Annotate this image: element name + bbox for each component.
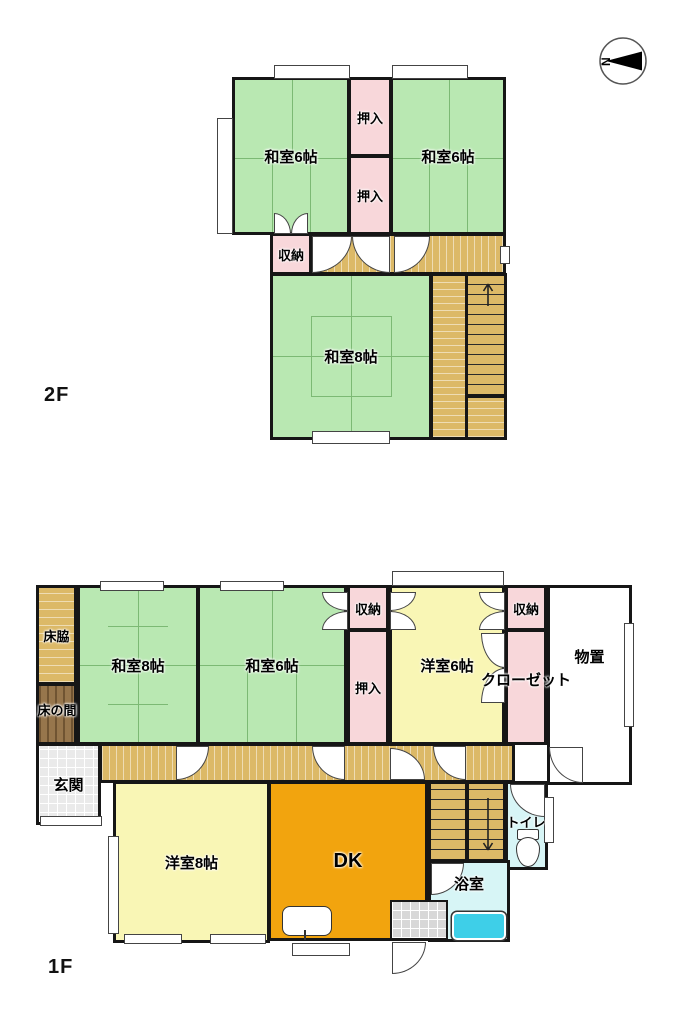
room-label: 洋室8帖 <box>165 852 218 873</box>
back-step-outside <box>292 943 350 956</box>
room-label: DK <box>334 850 363 873</box>
staircase-1f <box>428 781 506 862</box>
door-arc-1f-backdoor <box>392 942 426 974</box>
bay-window-1f-yoshitsu6 <box>392 571 504 586</box>
room-label: 床脇 <box>43 626 69 645</box>
vent-2f-right <box>500 246 510 264</box>
kitchen-sink-faucet-icon <box>304 930 306 940</box>
room-2f-shuno: 収納 <box>270 233 312 275</box>
window-2f-left <box>217 118 233 234</box>
room-1f-washitsu8: 和室8帖 <box>77 585 199 745</box>
room-label: 和室6帖 <box>245 655 298 676</box>
room-1f-genkan: 玄関 <box>36 743 101 825</box>
entrance-door-1f <box>40 816 102 826</box>
room-1f-monooki-label: 物置 <box>547 646 632 666</box>
room-1f-shuno-right: 収納 <box>505 585 547 631</box>
corridor-2f <box>430 273 469 440</box>
floor-1f-label: 1F <box>48 956 73 979</box>
room-1f-closet-label: クローゼット <box>478 670 574 688</box>
room-2f-oshiire-mid: 押入 <box>348 155 392 235</box>
room-2f-washitsu6-left: 和室6帖 <box>232 77 350 235</box>
window-2f-bottom <box>312 431 390 444</box>
window-1f-monooki-right <box>624 623 634 727</box>
window-1f-yoshitsu8-left <box>108 836 119 934</box>
stairs-down-arrow-icon <box>481 796 495 854</box>
svg-text:N: N <box>599 57 613 66</box>
room-1f-shuno-left: 収納 <box>347 585 389 631</box>
room-1f-tokowaki: 床脇 <box>36 585 77 685</box>
kitchen-sink-icon <box>282 906 332 936</box>
room-label: 和室8帖 <box>324 346 377 367</box>
window-1f-top-b <box>220 581 284 591</box>
room-1f-washitsu6: 和室6帖 <box>197 585 347 745</box>
window-2f-top-left <box>274 65 350 79</box>
room-label: 収納 <box>355 599 381 618</box>
room-label: 押入 <box>355 678 381 697</box>
bathtub-icon <box>452 912 506 940</box>
floor-2f-label: 2F <box>44 384 69 407</box>
room-label: 和室6帖 <box>264 146 317 167</box>
room-label: 和室6帖 <box>421 146 474 167</box>
floor-plan-canvas: N 2F 和室6帖 押入 押入 和室6帖 収納 和室8帖 <box>0 0 675 1024</box>
room-1f-tokonoma-label: 床の間 <box>24 700 90 718</box>
window-1f-bottom-b <box>210 934 266 944</box>
stairs-up-arrow-icon <box>481 280 495 308</box>
room-1f-yoshitsu6: 洋室6帖 <box>389 585 505 745</box>
room-1f-yoshitsu8: 洋室8帖 <box>113 781 270 943</box>
room-label: 収納 <box>278 245 304 264</box>
room-1f-oshiire: 押入 <box>347 629 389 745</box>
room-label: 押入 <box>357 108 383 127</box>
room-label: 収納 <box>513 599 539 618</box>
room-1f-bath-label: 浴室 <box>443 875 495 891</box>
compass-north-icon: N <box>596 34 650 88</box>
corridor-2f-under-stairs <box>465 395 507 440</box>
room-2f-oshiire-top: 押入 <box>348 77 392 157</box>
kitchen-back-tile-area <box>390 900 448 940</box>
window-2f-top-right <box>392 65 468 79</box>
room-2f-washitsu8: 和室8帖 <box>270 273 432 440</box>
window-1f-bottom-a <box>124 934 182 944</box>
room-label: 玄関 <box>53 774 83 795</box>
room-1f-toilet-label: トイレ <box>499 813 553 829</box>
room-label: 洋室6帖 <box>420 655 473 676</box>
room-label: 和室8帖 <box>111 655 164 676</box>
staircase-2f <box>465 273 507 397</box>
stairs-divider-wall <box>465 784 469 859</box>
room-label: 押入 <box>357 186 383 205</box>
window-1f-top-a <box>100 581 164 591</box>
room-2f-washitsu6-right: 和室6帖 <box>390 77 506 235</box>
